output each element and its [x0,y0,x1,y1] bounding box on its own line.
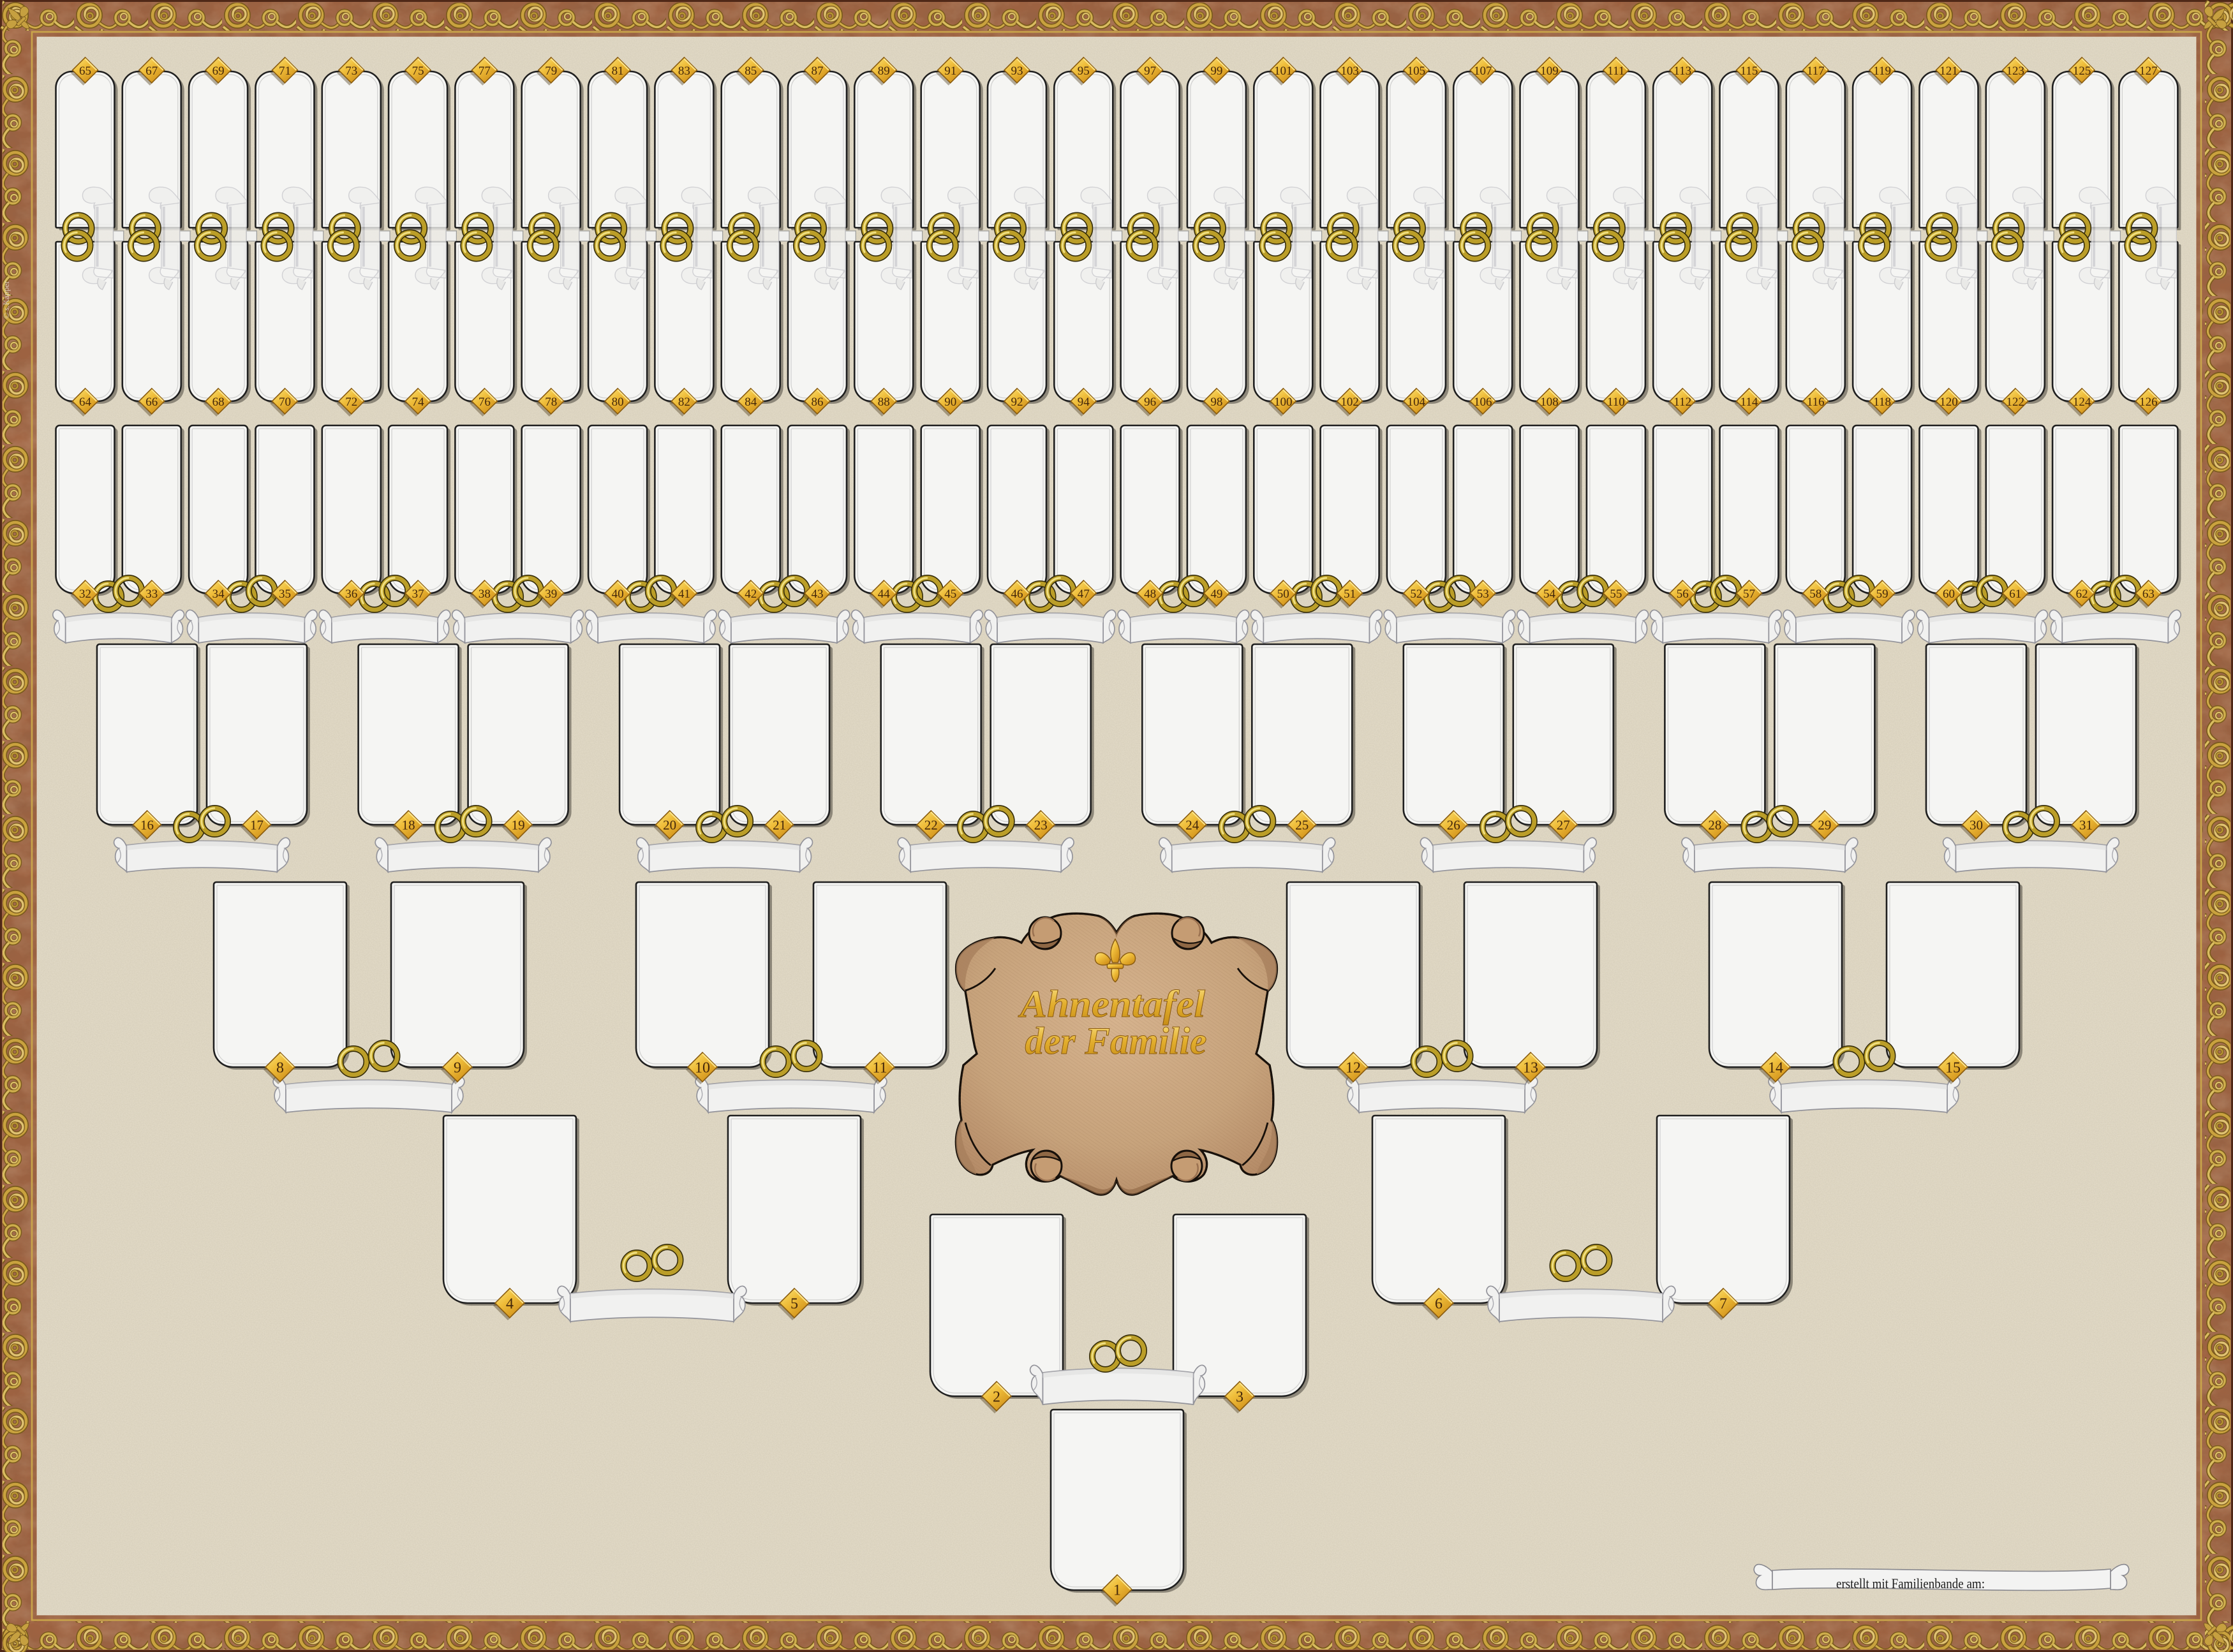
svg-text:11: 11 [872,1060,887,1077]
svg-text:105: 105 [1407,64,1426,78]
svg-text:118: 118 [1873,395,1891,409]
svg-text:16: 16 [140,818,154,833]
svg-text:67: 67 [145,64,158,78]
svg-text:99: 99 [1210,64,1222,78]
svg-text:68: 68 [212,395,225,409]
svg-text:54: 54 [1543,587,1556,601]
svg-text:69: 69 [212,64,225,78]
svg-text:41: 41 [678,587,690,601]
svg-text:122: 122 [2007,395,2025,409]
svg-text:6: 6 [1435,1296,1443,1313]
svg-text:70: 70 [279,395,291,409]
svg-text:10: 10 [695,1060,710,1077]
svg-text:78: 78 [545,395,557,409]
svg-text:82: 82 [678,395,690,409]
svg-text:15: 15 [1945,1060,1961,1077]
svg-text:124: 124 [2073,395,2091,409]
svg-text:14: 14 [1768,1060,1783,1077]
svg-text:26: 26 [1447,818,1460,833]
svg-text:64: 64 [79,395,92,409]
svg-text:9: 9 [454,1060,461,1077]
svg-text:85: 85 [745,64,757,78]
svg-text:44: 44 [878,587,891,601]
svg-text:80: 80 [612,395,624,409]
svg-text:116: 116 [1807,395,1825,409]
svg-text:© s.Kapper: © s.Kapper [1,281,11,319]
svg-text:126: 126 [2139,395,2158,409]
svg-text:59: 59 [1876,587,1888,601]
svg-text:39: 39 [545,587,557,601]
svg-text:21: 21 [773,818,786,833]
svg-text:83: 83 [678,64,690,78]
svg-text:32: 32 [79,587,91,601]
svg-text:65: 65 [79,64,91,78]
svg-text:der Familie: der Familie [1025,1020,1207,1062]
svg-text:104: 104 [1407,395,1426,409]
svg-text:61: 61 [2009,587,2021,601]
svg-text:107: 107 [1474,64,1492,78]
svg-text:95: 95 [1078,64,1090,78]
svg-text:90: 90 [944,395,956,409]
svg-text:12: 12 [1346,1060,1361,1077]
svg-text:113: 113 [1673,64,1691,78]
svg-text:110: 110 [1607,395,1625,409]
svg-text:24: 24 [1185,818,1199,833]
svg-text:42: 42 [745,587,757,601]
svg-text:94: 94 [1078,395,1090,409]
svg-text:46: 46 [1011,587,1023,601]
svg-text:86: 86 [812,395,824,409]
svg-text:38: 38 [478,587,491,601]
svg-text:52: 52 [1410,587,1422,601]
svg-text:47: 47 [1078,587,1090,601]
svg-text:84: 84 [745,395,757,409]
svg-text:4: 4 [506,1296,514,1313]
svg-text:125: 125 [2073,64,2091,78]
svg-text:111: 111 [1607,64,1624,78]
svg-text:34: 34 [212,587,225,601]
svg-text:51: 51 [1344,587,1356,601]
svg-text:73: 73 [345,64,357,78]
svg-text:102: 102 [1340,395,1359,409]
svg-text:89: 89 [878,64,890,78]
svg-text:erstellt mit Familienbande am:: erstellt mit Familienbande am: [1836,1575,1985,1591]
svg-text:48: 48 [1144,587,1156,601]
svg-text:36: 36 [345,587,357,601]
svg-text:63: 63 [2142,587,2155,601]
svg-text:127: 127 [2139,64,2158,78]
svg-text:53: 53 [1477,587,1489,601]
svg-text:117: 117 [1807,64,1825,78]
svg-text:25: 25 [1295,818,1309,833]
svg-text:37: 37 [412,587,424,601]
svg-text:33: 33 [145,587,158,601]
svg-text:23: 23 [1034,818,1048,833]
svg-text:93: 93 [1011,64,1023,78]
svg-text:119: 119 [1873,64,1891,78]
svg-text:77: 77 [478,64,491,78]
svg-text:81: 81 [612,64,624,78]
svg-text:58: 58 [1809,587,1821,601]
svg-text:121: 121 [1940,64,1958,78]
svg-text:19: 19 [512,818,525,833]
svg-text:100: 100 [1274,395,1293,409]
svg-text:115: 115 [1740,64,1758,78]
svg-text:3: 3 [1236,1389,1243,1406]
svg-text:60: 60 [1943,587,1955,601]
svg-text:31: 31 [2079,818,2093,833]
svg-text:120: 120 [1940,395,1958,409]
svg-text:22: 22 [924,818,938,833]
svg-text:75: 75 [412,64,424,78]
svg-text:57: 57 [1743,587,1755,601]
svg-text:49: 49 [1210,587,1222,601]
svg-text:1: 1 [1113,1582,1121,1599]
svg-text:20: 20 [663,818,676,833]
svg-text:88: 88 [878,395,890,409]
svg-text:123: 123 [2007,64,2025,78]
svg-text:106: 106 [1474,395,1492,409]
svg-text:8: 8 [276,1060,284,1077]
svg-text:7: 7 [1719,1296,1727,1313]
svg-text:18: 18 [402,818,415,833]
svg-text:35: 35 [279,587,291,601]
svg-text:114: 114 [1740,395,1758,409]
svg-text:96: 96 [1144,395,1156,409]
svg-text:13: 13 [1523,1060,1538,1077]
svg-text:5: 5 [790,1296,798,1313]
svg-text:91: 91 [944,64,956,78]
svg-text:28: 28 [1708,818,1721,833]
svg-text:71: 71 [279,64,291,78]
svg-text:76: 76 [478,395,491,409]
svg-text:79: 79 [545,64,557,78]
svg-text:109: 109 [1540,64,1559,78]
svg-text:112: 112 [1673,395,1691,409]
svg-text:108: 108 [1540,395,1559,409]
svg-text:72: 72 [345,395,357,409]
svg-text:30: 30 [1970,818,1983,833]
svg-text:55: 55 [1610,587,1622,601]
svg-text:62: 62 [2076,587,2088,601]
svg-text:103: 103 [1340,64,1359,78]
svg-text:101: 101 [1274,64,1293,78]
svg-text:2: 2 [993,1389,1000,1406]
svg-text:66: 66 [145,395,158,409]
svg-text:27: 27 [1557,818,1570,833]
svg-text:17: 17 [250,818,263,833]
svg-text:50: 50 [1277,587,1289,601]
svg-text:43: 43 [812,587,824,601]
svg-text:45: 45 [944,587,956,601]
svg-text:74: 74 [412,395,425,409]
svg-text:92: 92 [1011,395,1023,409]
svg-text:87: 87 [812,64,824,78]
svg-text:98: 98 [1210,395,1222,409]
svg-text:56: 56 [1677,587,1689,601]
svg-text:97: 97 [1144,64,1156,78]
svg-text:29: 29 [1818,818,1831,833]
svg-text:40: 40 [612,587,624,601]
svg-text:Ahnentafel: Ahnentafel [1018,983,1206,1025]
